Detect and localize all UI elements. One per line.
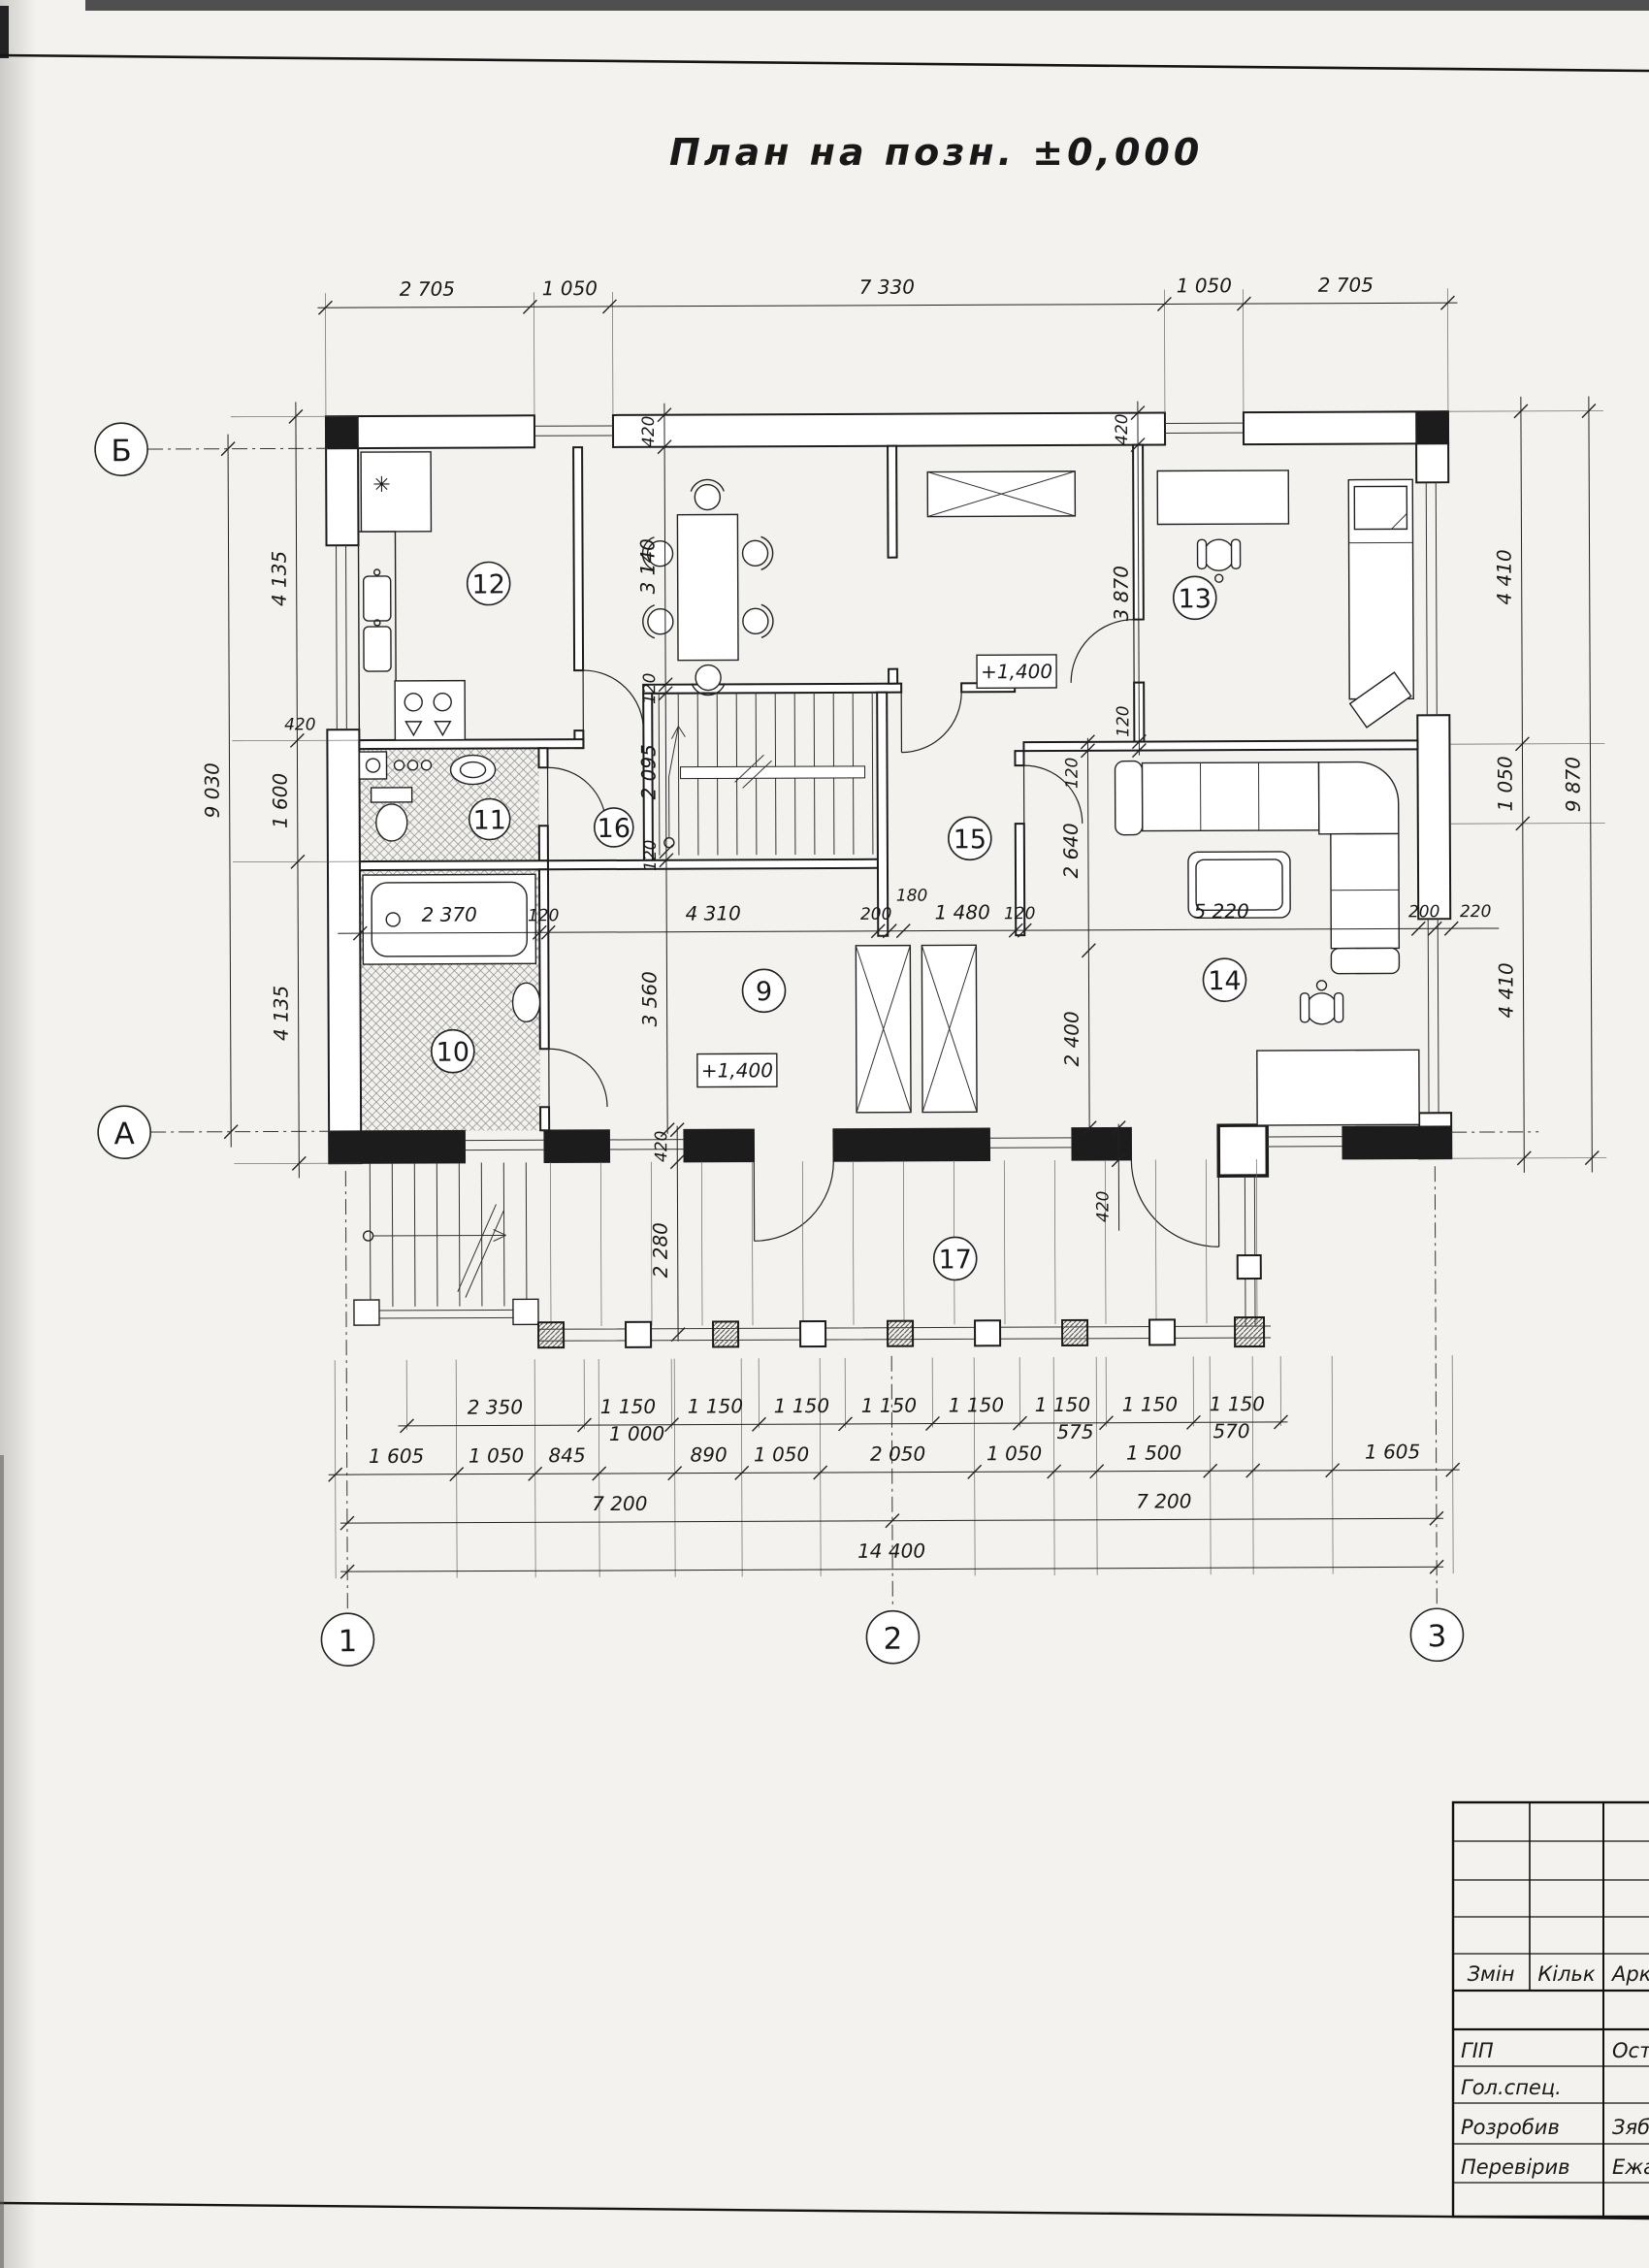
window-bottom-1: [465, 1140, 544, 1150]
porch-column-9: [1235, 1317, 1264, 1346]
dim-top-2: 7 330: [859, 275, 915, 299]
dim-rowb-raised-0: 1 000: [609, 1422, 664, 1445]
wall-top-mid: [613, 412, 1165, 446]
tb-header-kilk: Кільк: [1537, 1962, 1596, 1986]
dim-line-row-a: [398, 1422, 1287, 1426]
dim-rowc-1: 7 200: [1136, 1489, 1191, 1512]
axis-label-1: 1: [339, 1624, 358, 1659]
porch-column-7: [1062, 1320, 1087, 1345]
sofa-seat-short: [1331, 833, 1400, 948]
porch-corner-column: [1218, 1125, 1267, 1176]
wc-fixture-dot-2: [407, 761, 417, 770]
sofa-arm-bottom: [1331, 948, 1399, 973]
porch-column-8: [1149, 1319, 1175, 1345]
chair-top: [695, 484, 720, 509]
wall-room13-bottom: [1023, 740, 1417, 751]
dim-rowa-0: 2 350: [468, 1395, 523, 1418]
dim-rowb-3: 890: [690, 1442, 727, 1466]
wall-dining-bottom: [643, 684, 901, 694]
scanner-band-top: [85, 0, 1649, 11]
dim-left-wall: 420: [284, 715, 316, 734]
wall-left-lower: [327, 729, 361, 1163]
window-bottom-3: [989, 1138, 1072, 1148]
dim-right-overall: 9 870: [1561, 757, 1584, 812]
entry-stair-rail: [354, 1310, 538, 1318]
dim-rowc-0: 7 200: [592, 1492, 647, 1515]
dim-porch-0: 420: [652, 1130, 671, 1162]
entry-arrow-start: [364, 1231, 373, 1241]
porch-rail-post-mid: [1238, 1255, 1261, 1279]
axis-line-A: [150, 1131, 331, 1132]
wall-bath-right-lower: [540, 1107, 549, 1130]
dim-cola-0: 420: [639, 416, 659, 448]
rail-post-left: [354, 1300, 379, 1325]
dim-cola-4: 120: [641, 840, 661, 872]
door-bath: [549, 1049, 607, 1107]
entry-stair-break-mark: [457, 1204, 503, 1297]
axis-line-B: [147, 448, 328, 449]
dim-rowa-8: 1 150: [1210, 1392, 1265, 1415]
room-number-14: 14: [1208, 966, 1241, 996]
sink-bowl-1: [364, 576, 391, 621]
wall-left-upper: [326, 448, 358, 545]
washing-machine: [359, 752, 386, 779]
wall-right-mid: [1417, 715, 1450, 919]
desk-room13: [1157, 470, 1288, 525]
scanner-shadow-left: [0, 0, 37, 2268]
pier-b3: [684, 1129, 754, 1161]
wall-kitchen-right-upper: [573, 447, 583, 670]
pier-b1: [329, 1131, 465, 1164]
dim-rowb-2: 845: [548, 1443, 585, 1467]
axis-label-B: Б: [111, 434, 131, 469]
wall-wc-right-lower: [539, 826, 548, 860]
fridge-icon: ✳: [372, 473, 391, 498]
room-number-10: 10: [436, 1038, 469, 1068]
tb-label-pereviryv: Перевірив: [1461, 2155, 1570, 2179]
wall-wc-right-upper: [538, 748, 547, 767]
window-top-2: [1165, 423, 1244, 433]
stair-rail: [681, 766, 865, 779]
dim-line-col-a: [664, 404, 667, 1134]
wall-wc-bath-divider: [360, 860, 548, 870]
pier-b2: [544, 1130, 609, 1162]
axis-label-2: 2: [884, 1622, 903, 1657]
tb-label-gip: ГІП: [1461, 2039, 1494, 2062]
room-number-16: 16: [598, 814, 630, 844]
room-number-12: 12: [471, 569, 504, 599]
dim-top-1: 1 050: [542, 276, 598, 300]
chair14-headrest: [1316, 981, 1326, 990]
chair14-arm-left: [1301, 993, 1309, 1022]
porch-column-4: [800, 1321, 825, 1346]
toilet-bowl: [376, 804, 407, 841]
sheet-frame-top-line: [0, 55, 1649, 71]
dim-rowb-8: 1 605: [1365, 1440, 1420, 1463]
dim-mid-8: 200: [1408, 902, 1440, 922]
office-chair-room13: [1204, 539, 1235, 570]
desk-room14: [1257, 1050, 1419, 1125]
dim-cola-1: 3 140: [635, 538, 659, 594]
axis-label-3: 3: [1427, 1619, 1446, 1654]
sofa-arm-left: [1115, 761, 1142, 835]
fridge: [361, 452, 431, 532]
dim-top-3: 1 050: [1177, 274, 1232, 297]
porch-column-5: [888, 1321, 913, 1346]
title-block-row-lines-mid: [1453, 1991, 1649, 2029]
furniture-kitchen: ✳: [358, 452, 465, 740]
sink-bowl-2: [364, 627, 391, 671]
wall-hall15-right-upper: [1015, 751, 1023, 765]
dim-line-left: [296, 402, 299, 1178]
chair14-arm-right: [1335, 993, 1343, 1022]
wall-right-upper: [1416, 443, 1448, 482]
door-room13: [1071, 620, 1134, 683]
pier-b4: [833, 1128, 989, 1161]
door-kitchen: [583, 670, 643, 730]
wall-room9-right: [877, 693, 888, 936]
dim-colc-0: 120: [1062, 758, 1082, 790]
dim-colc-1: 2 640: [1059, 823, 1083, 878]
scan-edge-strip: [0, 1455, 4, 2268]
porch-column-1: [538, 1322, 564, 1347]
dim-mid-6: 120: [1004, 904, 1036, 923]
dim-right-1: 1 050: [1493, 756, 1516, 811]
wall-room9-top: [548, 859, 878, 869]
furniture-room14: [1115, 760, 1419, 1125]
rail-post-right: [513, 1299, 538, 1324]
dim-right-2: 4 410: [1494, 962, 1517, 1018]
tb-header-zmin: Змін: [1468, 1962, 1515, 1986]
wall-landing-left-lower: [889, 669, 897, 684]
dim-cola-3: 2 095: [636, 744, 660, 799]
dim-left-1: 1 600: [269, 773, 292, 828]
bath-sink: [512, 983, 539, 1021]
dim-mid-7: 5 220: [1193, 899, 1248, 923]
entry-stair-treads: [370, 1162, 527, 1307]
stair-direction-arrow: [668, 727, 686, 838]
washbasin: [450, 755, 495, 784]
chair-left-2: [648, 609, 673, 634]
porch-column-2: [626, 1322, 651, 1347]
chair-bottom: [695, 664, 721, 690]
title-block: Змін Кільк Арк ГІП Ост Гол.спец. Розроби…: [1453, 1802, 1649, 2217]
window-top-1: [534, 426, 613, 436]
office-chair-room14: [1307, 993, 1338, 1024]
dim-porch-1: 2 280: [649, 1222, 672, 1278]
porch-column-6: [975, 1320, 1000, 1345]
dim-cola-5: 3 560: [637, 971, 661, 1026]
wall-bath-right-upper: [539, 869, 549, 1049]
dim-line-porch: [677, 1126, 678, 1342]
sheet-frame-bottom-line: [0, 2203, 1649, 2219]
dim-rowa-5: 1 150: [949, 1393, 1004, 1416]
dim-colb-0: 420: [1113, 413, 1132, 445]
dim-colb-1: 3 870: [1110, 566, 1133, 621]
level-mark-1: +1,400: [981, 660, 1052, 683]
dim-rowb-4: 1 050: [754, 1442, 809, 1466]
chair-right-1: [743, 540, 768, 566]
dim-right-0: 4 410: [1493, 549, 1516, 604]
dim-rowa-4: 1 150: [861, 1394, 917, 1417]
scan-edge-mark: [0, 6, 9, 58]
dim-line-top: [317, 303, 1457, 308]
room-number-13: 13: [1179, 584, 1212, 614]
scanned-floor-plan-page: План на позн. ±0,000: [0, 0, 1649, 2268]
window-left-kitchen: [337, 545, 347, 729]
axis-line-3: [1435, 1166, 1437, 1605]
dim-left-2: 4 135: [270, 986, 293, 1041]
sofa-corner: [1319, 761, 1399, 833]
tb-label-golspec: Гол.спец.: [1461, 2076, 1562, 2099]
dim-colb-2: 120: [1114, 705, 1133, 737]
dim-line-left-overall: [228, 435, 231, 1148]
corner-pier-tl: [326, 416, 358, 448]
chair-right-2: [743, 608, 768, 633]
dim-rowa-3: 1 150: [774, 1394, 829, 1417]
tb-label-rozrobyv: Розробив: [1461, 2116, 1560, 2139]
wc-fixture-dot-3: [421, 761, 431, 770]
window-bottom-2: [609, 1140, 684, 1150]
door-hall15: [901, 692, 961, 752]
entry-stairs: [353, 1162, 538, 1325]
toilet-tank: [372, 788, 412, 802]
dim-mid-4: 180: [896, 887, 928, 906]
title-block-row-lines-top: [1453, 1841, 1649, 1954]
dim-mid-0: 2 370: [421, 903, 476, 926]
dim-rowb-6: 1 050: [986, 1442, 1042, 1465]
tb-value-pereviryv: Ежа: [1612, 2155, 1649, 2179]
dim-mid-1: 120: [528, 906, 560, 925]
dim-rowb-raised-1: 575: [1056, 1420, 1093, 1443]
drawing-title: План на позн. ±0,000: [669, 131, 1203, 174]
dim-rowa-2: 1 150: [688, 1394, 743, 1417]
grid-axes: Б А 1 2 3: [95, 417, 1541, 1667]
pier-b6: [1342, 1126, 1451, 1158]
dim-rowd: 14 400: [857, 1539, 925, 1563]
axis-line-1: [345, 1171, 347, 1610]
window-right-room14: [1428, 919, 1439, 1113]
room-number-15: 15: [954, 825, 986, 855]
wc-fixture-dot-1: [394, 761, 404, 770]
stove: [395, 681, 465, 740]
dining-table: [677, 514, 738, 660]
dim-line-right: [1521, 397, 1524, 1173]
floor-plan: ✳: [94, 272, 1608, 1667]
dim-mid-5: 1 480: [934, 900, 989, 923]
furniture-dining: [642, 479, 773, 696]
dim-line-col-c: [1087, 738, 1089, 1132]
dim-mid-9: 220: [1460, 902, 1492, 922]
chair13-base: [1215, 574, 1223, 582]
dim-porch-2: 420: [1093, 1190, 1113, 1222]
room-number-11: 11: [473, 805, 506, 835]
dim-rowb-7: 1 500: [1126, 1441, 1181, 1464]
dim-top-4: 2 705: [1318, 274, 1374, 297]
entry-direction-arrow: [373, 1229, 506, 1242]
dim-top-0: 2 705: [400, 277, 455, 301]
dim-rowa-1: 1 150: [600, 1395, 656, 1418]
chair13-arm-right: [1232, 539, 1241, 568]
dim-line-row-b: [329, 1470, 1460, 1474]
chair13-arm-left: [1198, 539, 1207, 568]
room-number-17: 17: [938, 1245, 971, 1275]
tb-header-ark: Арк: [1610, 1962, 1649, 1986]
porch-column-3: [713, 1321, 738, 1346]
room-number-9: 9: [756, 977, 772, 1007]
dim-line-right-overall: [1589, 397, 1592, 1173]
dim-colc-2: 2 400: [1060, 1011, 1083, 1066]
corner-pier-tr: [1416, 411, 1448, 443]
dim-rowa-7: 1 150: [1122, 1392, 1178, 1415]
dim-rowb-5: 2 050: [870, 1442, 925, 1466]
window-right-room13: [1426, 482, 1437, 715]
axis-label-A: А: [113, 1117, 134, 1151]
dim-rowb-raised-2: 570: [1212, 1419, 1249, 1442]
tb-value-rozrobyv: Зябр: [1612, 2116, 1649, 2139]
wall-landing-left-upper: [888, 446, 897, 558]
tb-value-gip: Ост: [1612, 2039, 1649, 2062]
sofa-seat-long: [1143, 762, 1319, 831]
dim-mid-3: 200: [860, 905, 892, 924]
sink-faucet-1: [374, 569, 380, 575]
staircase-main: [659, 693, 873, 856]
porch: [537, 1159, 1271, 1349]
dim-rowb-1: 1 050: [469, 1443, 524, 1467]
porch-rail-right: [1245, 1176, 1255, 1326]
level-mark-2: +1,400: [701, 1058, 773, 1082]
window-bottom-4: [1267, 1137, 1342, 1147]
dim-cola-2: 120: [640, 673, 660, 705]
door-entry-porch: [754, 1161, 833, 1241]
dim-left-overall: 9 030: [200, 762, 223, 818]
dim-rowb-0: 1 605: [369, 1444, 424, 1468]
title-block-frame: [1453, 1802, 1649, 2217]
dim-mid-2: 4 310: [685, 901, 740, 924]
bed: [1348, 479, 1413, 698]
dim-rowa-6: 1 150: [1035, 1393, 1090, 1416]
dim-left-0: 4 135: [268, 551, 291, 606]
